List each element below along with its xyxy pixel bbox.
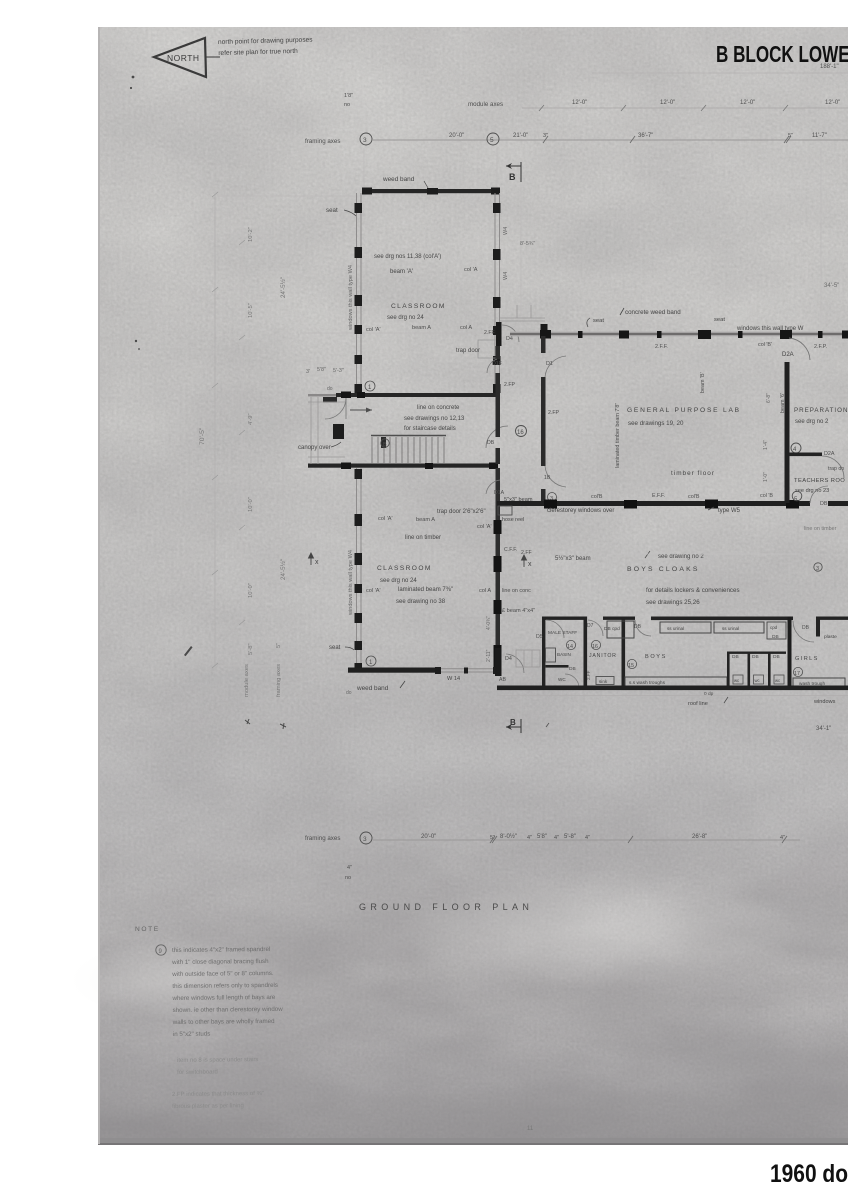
svg-text:see drawings 19, 20: see drawings 19, 20	[628, 420, 684, 427]
svg-text:8'-0½": 8'-0½"	[500, 833, 517, 840]
svg-text:do: do	[346, 690, 352, 696]
svg-text:DB: DB	[732, 654, 739, 660]
svg-text:MALE STAFF: MALE STAFF	[548, 630, 577, 636]
svg-text:D4: D4	[506, 336, 513, 342]
svg-text:2'-11": 2'-11"	[486, 649, 492, 662]
svg-text:3': 3'	[306, 369, 310, 375]
svg-text:DB: DB	[772, 634, 779, 640]
svg-text:£ beam 4"x4": £ beam 4"x4"	[502, 608, 535, 614]
svg-text:11'-7": 11'-7"	[812, 133, 827, 139]
svg-text:10'-0": 10'-0"	[248, 497, 254, 512]
svg-text:in 5"x2" studs: in 5"x2" studs	[173, 1031, 210, 1038]
svg-text:col 'A': col 'A'	[366, 588, 381, 594]
svg-text:see drg no 24: see drg no 24	[380, 578, 417, 584]
svg-text:WC: WC	[558, 677, 566, 682]
svg-text:no: no	[345, 875, 351, 881]
svg-text:beam 'A': beam 'A'	[390, 269, 413, 275]
svg-text:3: 3	[816, 566, 819, 572]
svg-text:W4: W4	[503, 272, 509, 280]
svg-text:B BLOCK LOWER: B BLOCK LOWER	[716, 41, 848, 67]
svg-text:E.F.F.: E.F.F.	[652, 493, 665, 499]
svg-text:canopy over: canopy over	[298, 445, 331, 451]
svg-text:4'-0¾": 4'-0¾"	[486, 616, 492, 630]
svg-text:plaste: plaste	[824, 634, 837, 640]
svg-text:70'-5": 70'-5"	[199, 427, 206, 445]
svg-text:D4: D4	[505, 656, 512, 662]
svg-text:DB: DB	[752, 654, 759, 660]
svg-text:where windows full length of b: where windows full length of bays are	[171, 994, 275, 1002]
svg-text:line on conc: line on conc	[502, 588, 531, 594]
svg-text:D1: D1	[546, 361, 553, 367]
svg-text:12'-0": 12'-0"	[572, 100, 587, 106]
svg-text:col 'A': col 'A'	[378, 516, 393, 522]
svg-text:JANITOR: JANITOR	[589, 653, 617, 659]
svg-text:D2A: D2A	[824, 451, 835, 457]
svg-text:CLASSROOM: CLASSROOM	[391, 303, 446, 310]
svg-text:8'-5¾": 8'-5¾"	[520, 241, 535, 247]
svg-text:4'-9": 4'-9"	[248, 413, 254, 425]
svg-text:roof line: roof line	[688, 701, 708, 707]
svg-text:see drg no 24: see drg no 24	[387, 315, 424, 321]
svg-text:D1F: D1F	[492, 361, 502, 367]
svg-text:15: 15	[628, 663, 634, 669]
svg-text:D5: D5	[536, 634, 543, 640]
svg-text:seat: seat	[593, 318, 604, 324]
svg-text:B: B	[510, 718, 516, 727]
svg-text:2.FF: 2.FF	[586, 670, 591, 680]
svg-text:BOYS CLOAKS: BOYS CLOAKS	[627, 566, 700, 573]
svg-text:line on timber: line on timber	[405, 535, 441, 541]
svg-text:24'-5½": 24'-5½"	[280, 559, 287, 580]
svg-text:5'8": 5'8"	[317, 367, 326, 373]
svg-text:D1A: D1A	[494, 490, 505, 496]
svg-text:col A: col A	[460, 325, 472, 331]
svg-text:3": 3"	[543, 133, 548, 139]
svg-text:1960 do: 1960 do	[770, 1160, 848, 1188]
svg-text:weed band: weed band	[382, 176, 415, 183]
svg-text:2.FF: 2.FF	[521, 550, 532, 556]
svg-text:see drawings 25,26: see drawings 25,26	[646, 599, 700, 606]
svg-text:1'-0": 1'-0"	[763, 472, 769, 482]
svg-text:see drg no 23: see drg no 23	[795, 488, 829, 494]
svg-text:1B: 1B	[544, 475, 551, 481]
svg-text:wc: wc	[775, 678, 780, 683]
svg-text:1'8": 1'8"	[344, 93, 353, 99]
svg-text:this indicates 4"x2" framed sp: this indicates 4"x2" framed spandrel	[172, 946, 270, 954]
svg-text:framing axes: framing axes	[305, 138, 340, 145]
svg-text:W 14: W 14	[447, 676, 460, 682]
svg-text:line on timber: line on timber	[804, 526, 837, 532]
svg-text:5": 5"	[276, 643, 282, 648]
svg-text:seat: seat	[329, 645, 341, 651]
svg-text:1'-4": 1'-4"	[763, 440, 769, 450]
svg-text:line on concrete: line on concrete	[417, 405, 460, 411]
svg-text:DB: DB	[802, 625, 810, 631]
svg-text:NOTE: NOTE	[135, 926, 160, 933]
svg-text:for details lockers & convenie: for details lockers & conveniences	[646, 587, 740, 594]
svg-text:x: x	[315, 559, 319, 566]
svg-text:windows: windows	[813, 699, 836, 705]
svg-text:PREPARATION: PREPARATION	[794, 407, 848, 414]
svg-text:trap door: trap door	[456, 348, 480, 354]
svg-text:windows this wall type W4: windows this wall type W4	[348, 550, 354, 616]
svg-text:2.FP: 2.FP	[504, 382, 515, 388]
svg-text:4": 4"	[527, 835, 532, 841]
svg-text:module axes: module axes	[244, 664, 250, 697]
svg-text:weed band: weed band	[356, 685, 389, 692]
svg-text:seat: seat	[714, 317, 725, 323]
svg-text:DB: DB	[634, 624, 642, 630]
svg-text:module axes: module axes	[468, 101, 503, 108]
svg-text:this dimension refers only to: this dimension refers only to spandrels	[172, 982, 278, 990]
svg-text:34'-5": 34'-5"	[824, 283, 839, 289]
svg-text:4": 4"	[585, 835, 590, 841]
svg-text:for staircase details: for staircase details	[404, 426, 456, 432]
svg-text:with outside face of 5" or 8": with outside face of 5" or 8" columns.	[171, 970, 274, 978]
svg-text:x: x	[528, 561, 532, 568]
svg-text:with 1" close diagonal bracing: with 1" close diagonal bracing flush	[171, 958, 269, 966]
svg-text:17: 17	[794, 671, 800, 677]
svg-text:DB: DB	[820, 501, 828, 507]
svg-text:AB: AB	[499, 677, 506, 683]
svg-text:2.F.P.: 2.F.P.	[814, 344, 827, 350]
svg-text:concrete weed band: concrete weed band	[625, 309, 681, 316]
svg-text:5½"x3" beam: 5½"x3" beam	[555, 555, 591, 562]
svg-text:windows this wall type W: windows this wall type W	[736, 326, 804, 332]
svg-text:16: 16	[592, 644, 598, 650]
svg-text:framing axes: framing axes	[276, 664, 282, 697]
svg-text:16: 16	[517, 430, 524, 436]
svg-text:D2A: D2A	[782, 352, 794, 358]
svg-text:B: B	[509, 172, 516, 182]
svg-text:BOYS: BOYS	[645, 654, 667, 660]
svg-text:4": 4"	[554, 835, 559, 841]
svg-text:laminated timber beam 7'8": laminated timber beam 7'8"	[615, 403, 621, 468]
svg-text:GENERAL PURPOSE LAB: GENERAL PURPOSE LAB	[627, 407, 741, 414]
svg-text:ss urinal: ss urinal	[667, 626, 684, 631]
svg-text:10'-0": 10'-0"	[248, 583, 254, 598]
svg-text:windows this wall type W4: windows this wall type W4	[348, 265, 354, 331]
svg-text:col 'A: col 'A	[464, 267, 478, 273]
svg-text:24'-5½": 24'-5½"	[280, 277, 287, 298]
svg-text:col 'A': col 'A'	[477, 524, 492, 530]
svg-text:ss urinal: ss urinal	[722, 626, 739, 631]
svg-text:beam A: beam A	[412, 325, 431, 331]
svg-text:no: no	[344, 102, 350, 108]
svg-text:walls to other bays are wholly: walls to other bays are wholly framed	[172, 1018, 275, 1026]
svg-text:5'-8": 5'-8"	[248, 643, 254, 655]
svg-text:col'B: col'B	[688, 494, 700, 500]
svg-text:timber floor: timber floor	[671, 470, 715, 477]
svg-text:GROUND FLOOR PLAN: GROUND FLOOR PLAN	[359, 902, 533, 912]
svg-text:trap do: trap do	[828, 466, 844, 472]
svg-text:12'-0": 12'-0"	[825, 100, 840, 106]
svg-text:2.FP indicates that thickness: 2.FP indicates that thickness of ¾"	[172, 1091, 264, 1098]
svg-text:see drawing no 38: see drawing no 38	[396, 599, 446, 605]
svg-text:20'-0": 20'-0"	[421, 834, 436, 840]
svg-text:hose reel: hose reel	[502, 517, 524, 523]
svg-text:GIRLS: GIRLS	[795, 656, 819, 662]
svg-text:26'-8": 26'-8"	[692, 834, 707, 840]
svg-text:col 'B: col 'B	[760, 493, 773, 499]
svg-text:wc: wc	[734, 678, 739, 683]
svg-text:2.FF: 2.FF	[484, 330, 495, 336]
svg-text:C.F.F.: C.F.F.	[504, 547, 517, 553]
svg-text:see drg nos 11,38 (col'A'): see drg nos 11,38 (col'A')	[374, 254, 441, 260]
svg-text:14: 14	[567, 644, 573, 650]
svg-text:3: 3	[363, 137, 367, 144]
svg-text:laminated beam 7⅜": laminated beam 7⅜"	[398, 587, 453, 593]
svg-text:fibrous plaster as per lining: fibrous plaster as per lining	[172, 1103, 244, 1110]
svg-text:10'-5": 10'-5"	[248, 303, 254, 318]
svg-text:0 dp: 0 dp	[704, 691, 714, 697]
svg-text:NORTH: NORTH	[167, 53, 200, 63]
svg-text:beam 'B': beam 'B'	[700, 372, 706, 393]
svg-text:2.F.F.: 2.F.F.	[655, 344, 668, 350]
svg-text:beam A: beam A	[416, 517, 435, 523]
svg-text:col 'A': col 'A'	[366, 327, 381, 333]
svg-text:sink: sink	[599, 679, 608, 684]
svg-text:wc: wc	[755, 678, 760, 683]
svg-text:36'-7": 36'-7"	[638, 133, 653, 139]
svg-text:10'-2": 10'-2"	[248, 227, 254, 242]
svg-text:5: 5	[490, 137, 494, 144]
svg-text:seat: seat	[326, 207, 338, 214]
svg-text:34'-1": 34'-1"	[816, 726, 831, 732]
svg-text:20'-0": 20'-0"	[449, 133, 464, 139]
svg-text:BASIN: BASIN	[557, 652, 571, 657]
svg-text:12'-0": 12'-0"	[660, 100, 675, 106]
svg-text:framing axes: framing axes	[305, 835, 340, 842]
svg-text:D7: D7	[587, 623, 594, 629]
svg-text:item no 8 is space under stair: item no 8 is space under stairs	[177, 1057, 258, 1064]
svg-text:DB: DB	[487, 440, 495, 446]
svg-text:21'-0": 21'-0"	[513, 133, 528, 139]
svg-text:3: 3	[363, 836, 367, 843]
svg-text:cpd: cpd	[770, 625, 778, 630]
svg-text:TEACHERS ROO: TEACHERS ROO	[794, 478, 845, 484]
svg-text:type W5: type W5	[718, 508, 741, 514]
svg-text:see drawing no 2: see drawing no 2	[658, 554, 704, 560]
svg-text:DB: DB	[773, 654, 780, 660]
svg-text:DB cpd: DB cpd	[604, 626, 620, 632]
svg-text:11: 11	[527, 1126, 534, 1132]
svg-text:col A: col A	[479, 588, 491, 594]
svg-text:2.FP: 2.FP	[548, 410, 559, 416]
svg-text:for switchboard: for switchboard	[177, 1070, 218, 1076]
svg-text:col'B: col'B	[591, 494, 603, 500]
svg-text:shown. ie other than clerestor: shown. ie other than clerestorey window	[173, 1006, 284, 1014]
svg-text:see drawings no 12,13: see drawings no 12,13	[404, 416, 465, 422]
svg-text:DB: DB	[569, 666, 576, 672]
svg-text:CLASSROOM: CLASSROOM	[377, 565, 432, 572]
svg-text:clerestorey windows over: clerestorey windows over	[547, 508, 614, 514]
svg-text:12'-0": 12'-0"	[740, 100, 755, 106]
svg-text:B: B	[383, 442, 387, 448]
svg-text:col 'B': col 'B'	[758, 342, 772, 348]
svg-text:6'-8": 6'-8"	[766, 393, 772, 403]
svg-text:5'-3": 5'-3"	[333, 368, 344, 374]
svg-text:s.s wash troughs: s.s wash troughs	[629, 680, 666, 686]
svg-text:see drg no 2: see drg no 2	[795, 419, 829, 425]
svg-text:4": 4"	[347, 865, 352, 871]
svg-text:do: do	[327, 386, 333, 392]
svg-text:5'-8": 5'-8"	[564, 834, 576, 840]
svg-text:W4: W4	[503, 227, 509, 235]
svg-text:5'8": 5'8"	[537, 834, 547, 840]
svg-text:trap door 2'6"x2'6": trap door 2'6"x2'6"	[437, 509, 486, 515]
